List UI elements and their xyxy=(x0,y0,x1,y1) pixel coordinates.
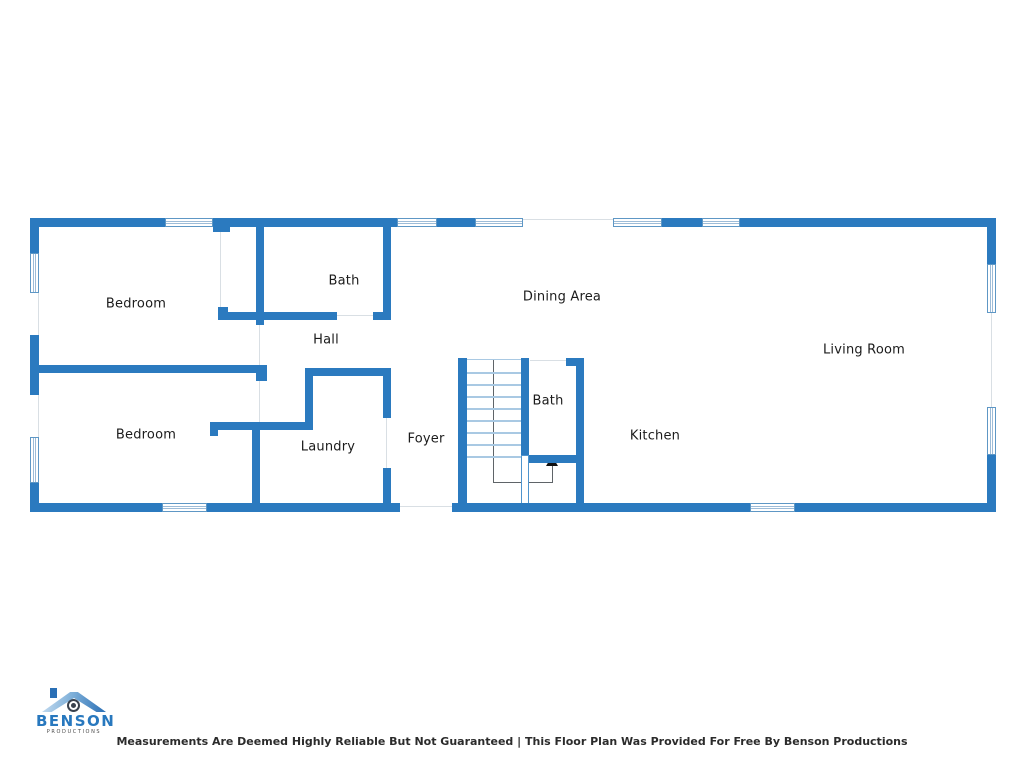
wall-segment xyxy=(207,503,400,512)
wall-segment xyxy=(795,503,996,512)
wall-segment xyxy=(256,227,264,325)
benson-logo: BENSON PRODUCTIONS xyxy=(36,686,112,742)
window-symbol xyxy=(987,264,996,313)
stair-tread xyxy=(467,420,521,422)
wall-segment xyxy=(30,503,162,512)
wall-segment xyxy=(210,422,313,430)
stair-tread xyxy=(467,456,521,458)
wall-segment xyxy=(529,455,584,463)
opening-line xyxy=(386,418,387,468)
room-label-foyer: Foyer xyxy=(407,432,444,447)
wall-segment xyxy=(987,455,996,512)
wall-segment xyxy=(458,358,467,504)
wall-segment xyxy=(30,335,39,395)
wall-segment xyxy=(213,227,230,232)
window-symbol xyxy=(702,218,740,227)
floor-plan: Bedroom Bath Hall Dining Area Living Roo… xyxy=(0,0,1024,768)
opening-line xyxy=(991,313,992,407)
stair-tread xyxy=(467,396,521,398)
room-label-bath-1: Bath xyxy=(328,274,359,289)
logo-chimney-icon xyxy=(50,688,57,698)
wall-segment xyxy=(452,503,750,512)
stair-tread xyxy=(467,372,521,374)
opening-line xyxy=(523,219,613,220)
wall-segment xyxy=(740,218,996,227)
opening-line xyxy=(220,232,221,307)
wall-segment xyxy=(30,483,39,512)
wall-segment xyxy=(383,468,391,504)
floor-plan-page: Bedroom Bath Hall Dining Area Living Roo… xyxy=(0,0,1024,768)
stair-rail xyxy=(521,455,529,504)
stair-top-line xyxy=(467,359,521,360)
window-symbol xyxy=(987,407,996,455)
room-label-bedroom-1: Bedroom xyxy=(106,297,166,312)
opening-line xyxy=(259,325,260,365)
window-symbol xyxy=(475,218,523,227)
window-symbol xyxy=(165,218,213,227)
window-symbol xyxy=(162,503,207,512)
opening-line xyxy=(337,315,373,316)
wall-segment xyxy=(39,365,267,373)
room-label-laundry: Laundry xyxy=(301,440,355,455)
opening-line xyxy=(38,293,39,335)
wall-segment xyxy=(521,358,529,455)
wall-segment xyxy=(373,312,391,320)
opening-line xyxy=(400,506,452,507)
wall-segment xyxy=(30,218,165,227)
opening-line xyxy=(259,381,260,422)
wall-segment xyxy=(437,218,475,227)
wall-segment xyxy=(305,368,390,376)
opening-line xyxy=(38,395,39,437)
room-label-kitchen: Kitchen xyxy=(630,429,680,444)
wall-segment xyxy=(256,373,267,381)
wall-segment xyxy=(218,312,337,320)
room-label-hall: Hall xyxy=(313,333,339,348)
window-symbol xyxy=(397,218,437,227)
room-label-living-room: Living Room xyxy=(823,343,905,358)
stair-tread xyxy=(467,444,521,446)
wall-segment xyxy=(576,358,584,504)
opening-line xyxy=(530,360,566,361)
window-symbol xyxy=(30,437,39,483)
stair-tread xyxy=(467,432,521,434)
disclaimer-text: Measurements Are Deemed Highly Reliable … xyxy=(0,735,1024,748)
window-symbol xyxy=(30,253,39,293)
wall-segment xyxy=(305,368,313,430)
wall-segment xyxy=(383,227,391,320)
logo-name: BENSON xyxy=(36,712,112,730)
stair-tread xyxy=(467,384,521,386)
room-label-bedroom-2: Bedroom xyxy=(116,428,176,443)
window-symbol xyxy=(750,503,795,512)
wall-segment xyxy=(213,218,397,227)
stair-direction-line xyxy=(552,466,553,483)
wall-segment xyxy=(662,218,702,227)
wall-segment xyxy=(252,430,260,504)
stair-tread xyxy=(467,408,521,410)
window-symbol xyxy=(613,218,662,227)
room-label-bath-2: Bath xyxy=(532,394,563,409)
room-label-dining-area: Dining Area xyxy=(523,290,601,305)
camera-aperture-icon xyxy=(67,699,80,712)
